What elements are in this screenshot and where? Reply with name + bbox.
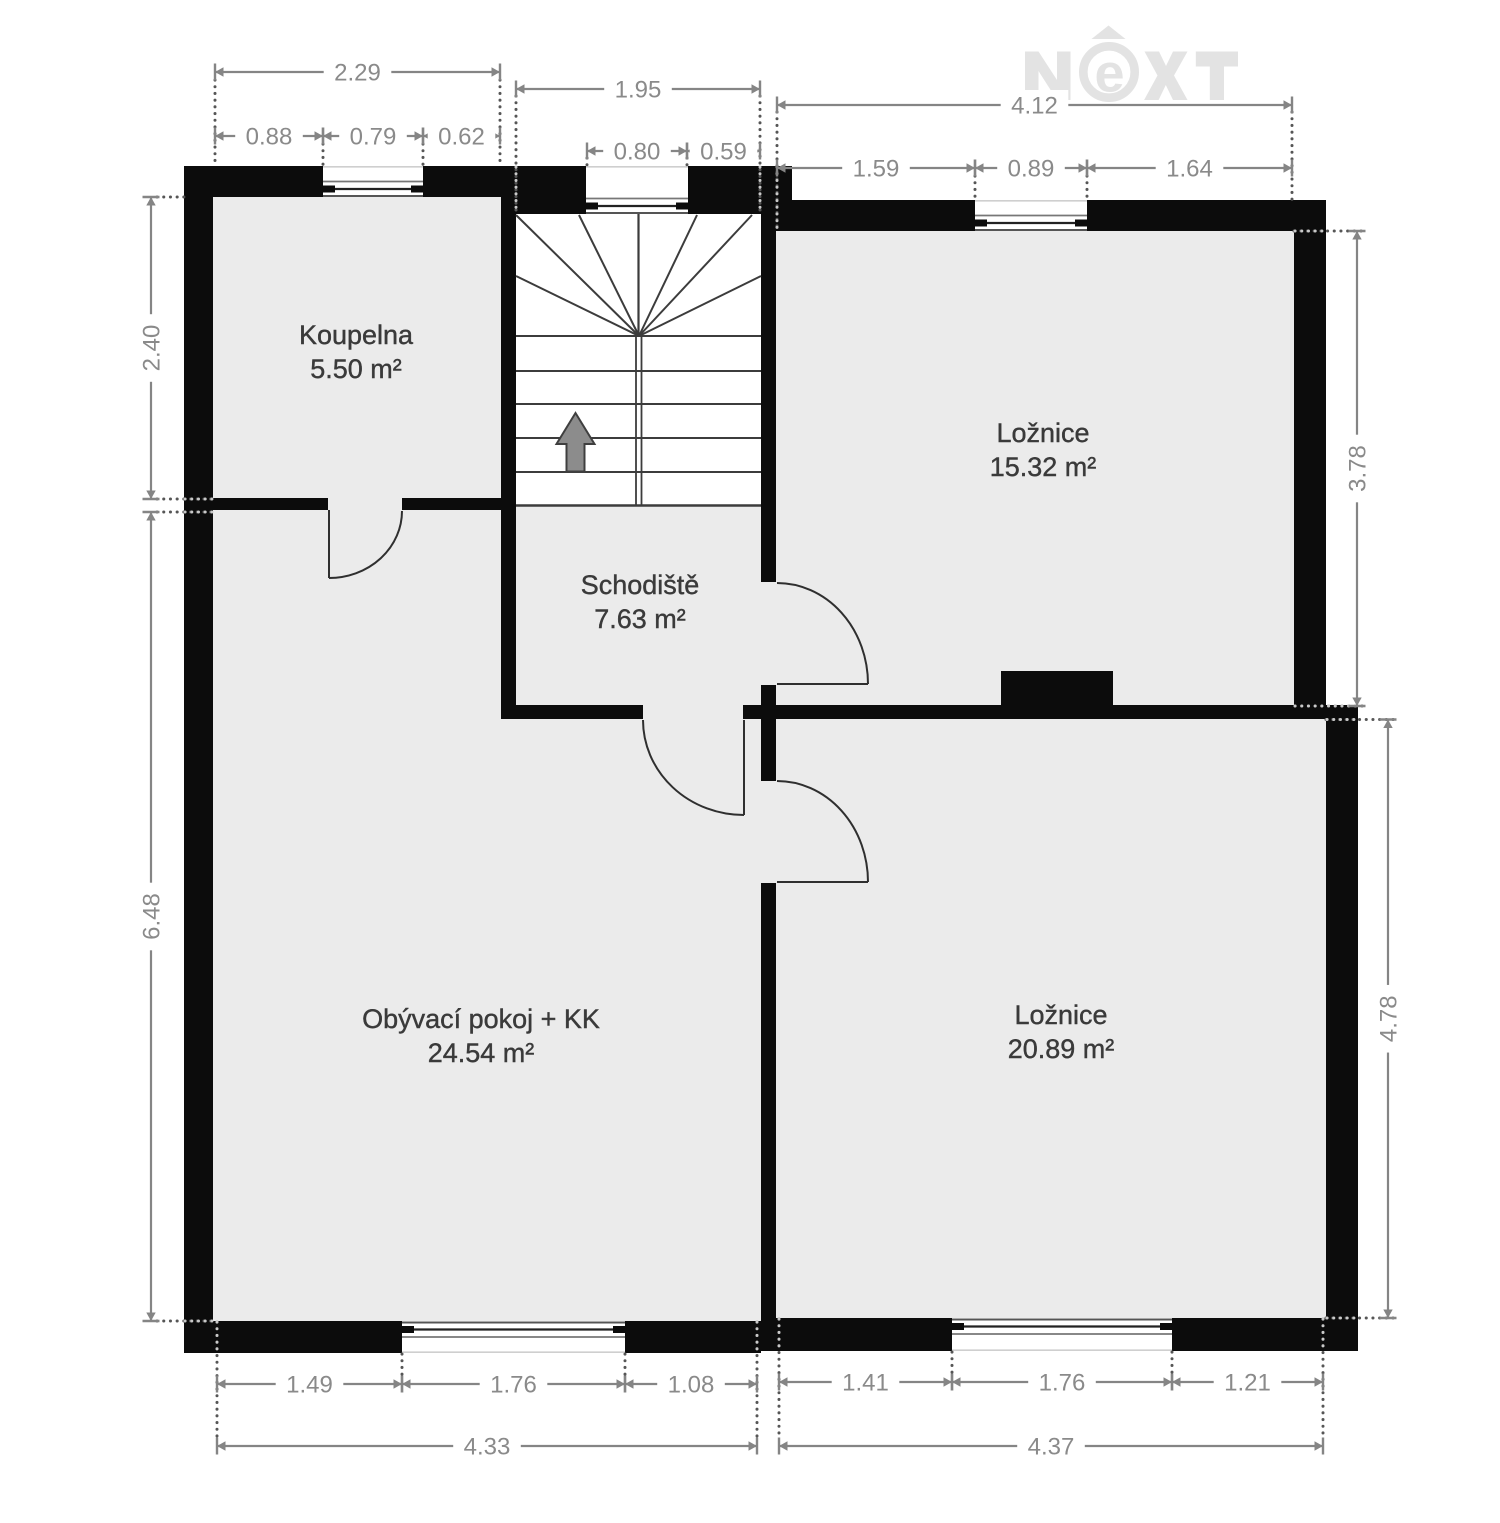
svg-text:Obývací pokoj + KK: Obývací pokoj + KK — [362, 1004, 600, 1034]
svg-text:0.59: 0.59 — [700, 139, 747, 166]
svg-text:4.37: 4.37 — [1028, 1434, 1075, 1461]
svg-text:24.54 m²: 24.54 m² — [428, 1038, 535, 1068]
svg-text:5.50 m²: 5.50 m² — [310, 354, 402, 384]
svg-text:1.41: 1.41 — [842, 1370, 889, 1397]
svg-text:2.29: 2.29 — [334, 60, 381, 87]
svg-text:15.32 m²: 15.32 m² — [990, 452, 1097, 482]
svg-text:Ložnice: Ložnice — [996, 418, 1089, 448]
svg-text:20.89 m²: 20.89 m² — [1008, 1034, 1115, 1064]
svg-text:0.88: 0.88 — [246, 124, 293, 151]
svg-text:e: e — [1094, 44, 1124, 104]
svg-text:1.64: 1.64 — [1166, 156, 1213, 183]
svg-text:4.78: 4.78 — [1376, 995, 1403, 1042]
svg-text:3.78: 3.78 — [1345, 445, 1372, 492]
svg-text:1.49: 1.49 — [286, 1372, 333, 1399]
svg-text:Schodiště: Schodiště — [581, 570, 700, 600]
svg-text:4.12: 4.12 — [1011, 93, 1058, 120]
svg-text:6.48: 6.48 — [139, 893, 166, 940]
svg-text:0.80: 0.80 — [614, 139, 661, 166]
svg-text:7.63 m²: 7.63 m² — [594, 604, 686, 634]
svg-text:0.79: 0.79 — [350, 124, 397, 151]
svg-text:0.89: 0.89 — [1008, 156, 1055, 183]
svg-text:Koupelna: Koupelna — [299, 320, 414, 350]
svg-text:1.76: 1.76 — [490, 1372, 537, 1399]
svg-text:1.76: 1.76 — [1039, 1370, 1086, 1397]
svg-text:1.95: 1.95 — [615, 77, 662, 104]
svg-text:0.62: 0.62 — [438, 124, 485, 151]
svg-text:1.08: 1.08 — [668, 1372, 715, 1399]
svg-text:1.59: 1.59 — [853, 156, 900, 183]
svg-text:1.21: 1.21 — [1224, 1370, 1271, 1397]
svg-text:Ložnice: Ložnice — [1014, 1000, 1107, 1030]
svg-text:2.40: 2.40 — [139, 325, 166, 372]
svg-text:4.33: 4.33 — [464, 1434, 511, 1461]
